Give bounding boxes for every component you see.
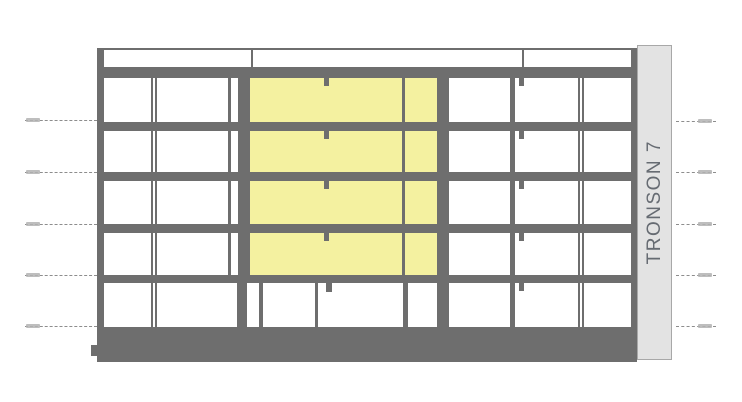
beam-notch <box>324 78 329 86</box>
room-cell <box>104 78 151 122</box>
room-cell <box>263 283 315 327</box>
room-cell <box>449 233 510 275</box>
room-cell <box>231 233 238 275</box>
beam-notch <box>519 233 524 241</box>
room-cell <box>231 181 238 224</box>
parapet-cell <box>253 50 522 67</box>
room-cell <box>515 78 578 122</box>
room-cell <box>153 131 155 172</box>
room-cell <box>584 131 631 172</box>
room-cell <box>580 131 582 172</box>
level-label <box>698 273 712 277</box>
room-cell <box>449 181 510 224</box>
highlight-cell <box>405 78 437 122</box>
room-cell <box>153 283 155 327</box>
room-cell <box>580 181 582 224</box>
level-label <box>698 119 712 123</box>
level-label <box>698 324 712 328</box>
level-label <box>698 170 712 174</box>
room-cell <box>580 283 582 327</box>
room-cell <box>104 181 151 224</box>
level-label <box>26 324 40 328</box>
room-cell <box>318 283 326 327</box>
room-cell <box>157 181 228 224</box>
room-cell <box>580 78 582 122</box>
highlight-cell <box>405 131 437 172</box>
room-cell <box>104 283 151 327</box>
level-label <box>698 222 712 226</box>
drawing-canvas: TRONSON 7 <box>0 0 742 402</box>
room-cell <box>584 181 631 224</box>
room-cell <box>231 131 238 172</box>
room-cell <box>231 78 238 122</box>
room-cell <box>449 283 510 327</box>
room-cell <box>449 78 510 122</box>
beam-notch <box>324 131 329 139</box>
room-cell <box>515 131 578 172</box>
room-cell <box>408 283 437 327</box>
room-cell <box>247 283 259 327</box>
beam-notch <box>324 233 329 241</box>
parapet-cell <box>524 50 631 67</box>
room-cell <box>449 131 510 172</box>
highlight-cell <box>405 181 437 224</box>
parapet-cell <box>104 50 251 67</box>
room-cell <box>515 181 578 224</box>
room-cell <box>326 283 403 327</box>
base-step <box>91 345 97 356</box>
room-cell <box>104 131 151 172</box>
beam-notch <box>326 283 332 292</box>
beam-notch <box>519 131 524 139</box>
room-cell <box>153 233 155 275</box>
room-cell <box>584 233 631 275</box>
room-cell <box>157 78 228 122</box>
room-cell <box>153 78 155 122</box>
level-label <box>26 170 40 174</box>
beam-notch <box>324 181 329 189</box>
beam-notch <box>519 181 524 189</box>
highlight-cell <box>405 233 437 275</box>
room-cell <box>104 233 151 275</box>
beam-notch <box>519 283 524 291</box>
level-label <box>26 118 40 122</box>
level-label <box>26 273 40 277</box>
room-cell <box>153 181 155 224</box>
room-cell <box>157 283 237 327</box>
tronson-band: TRONSON 7 <box>637 45 672 360</box>
room-cell <box>157 131 228 172</box>
beam-notch <box>519 78 524 86</box>
room-cell <box>580 233 582 275</box>
room-cell <box>584 283 631 327</box>
room-cell <box>515 233 578 275</box>
tronson-band-label: TRONSON 7 <box>644 140 666 264</box>
room-cell <box>584 78 631 122</box>
level-label <box>26 222 40 226</box>
room-cell <box>515 283 578 327</box>
room-cell <box>157 233 228 275</box>
